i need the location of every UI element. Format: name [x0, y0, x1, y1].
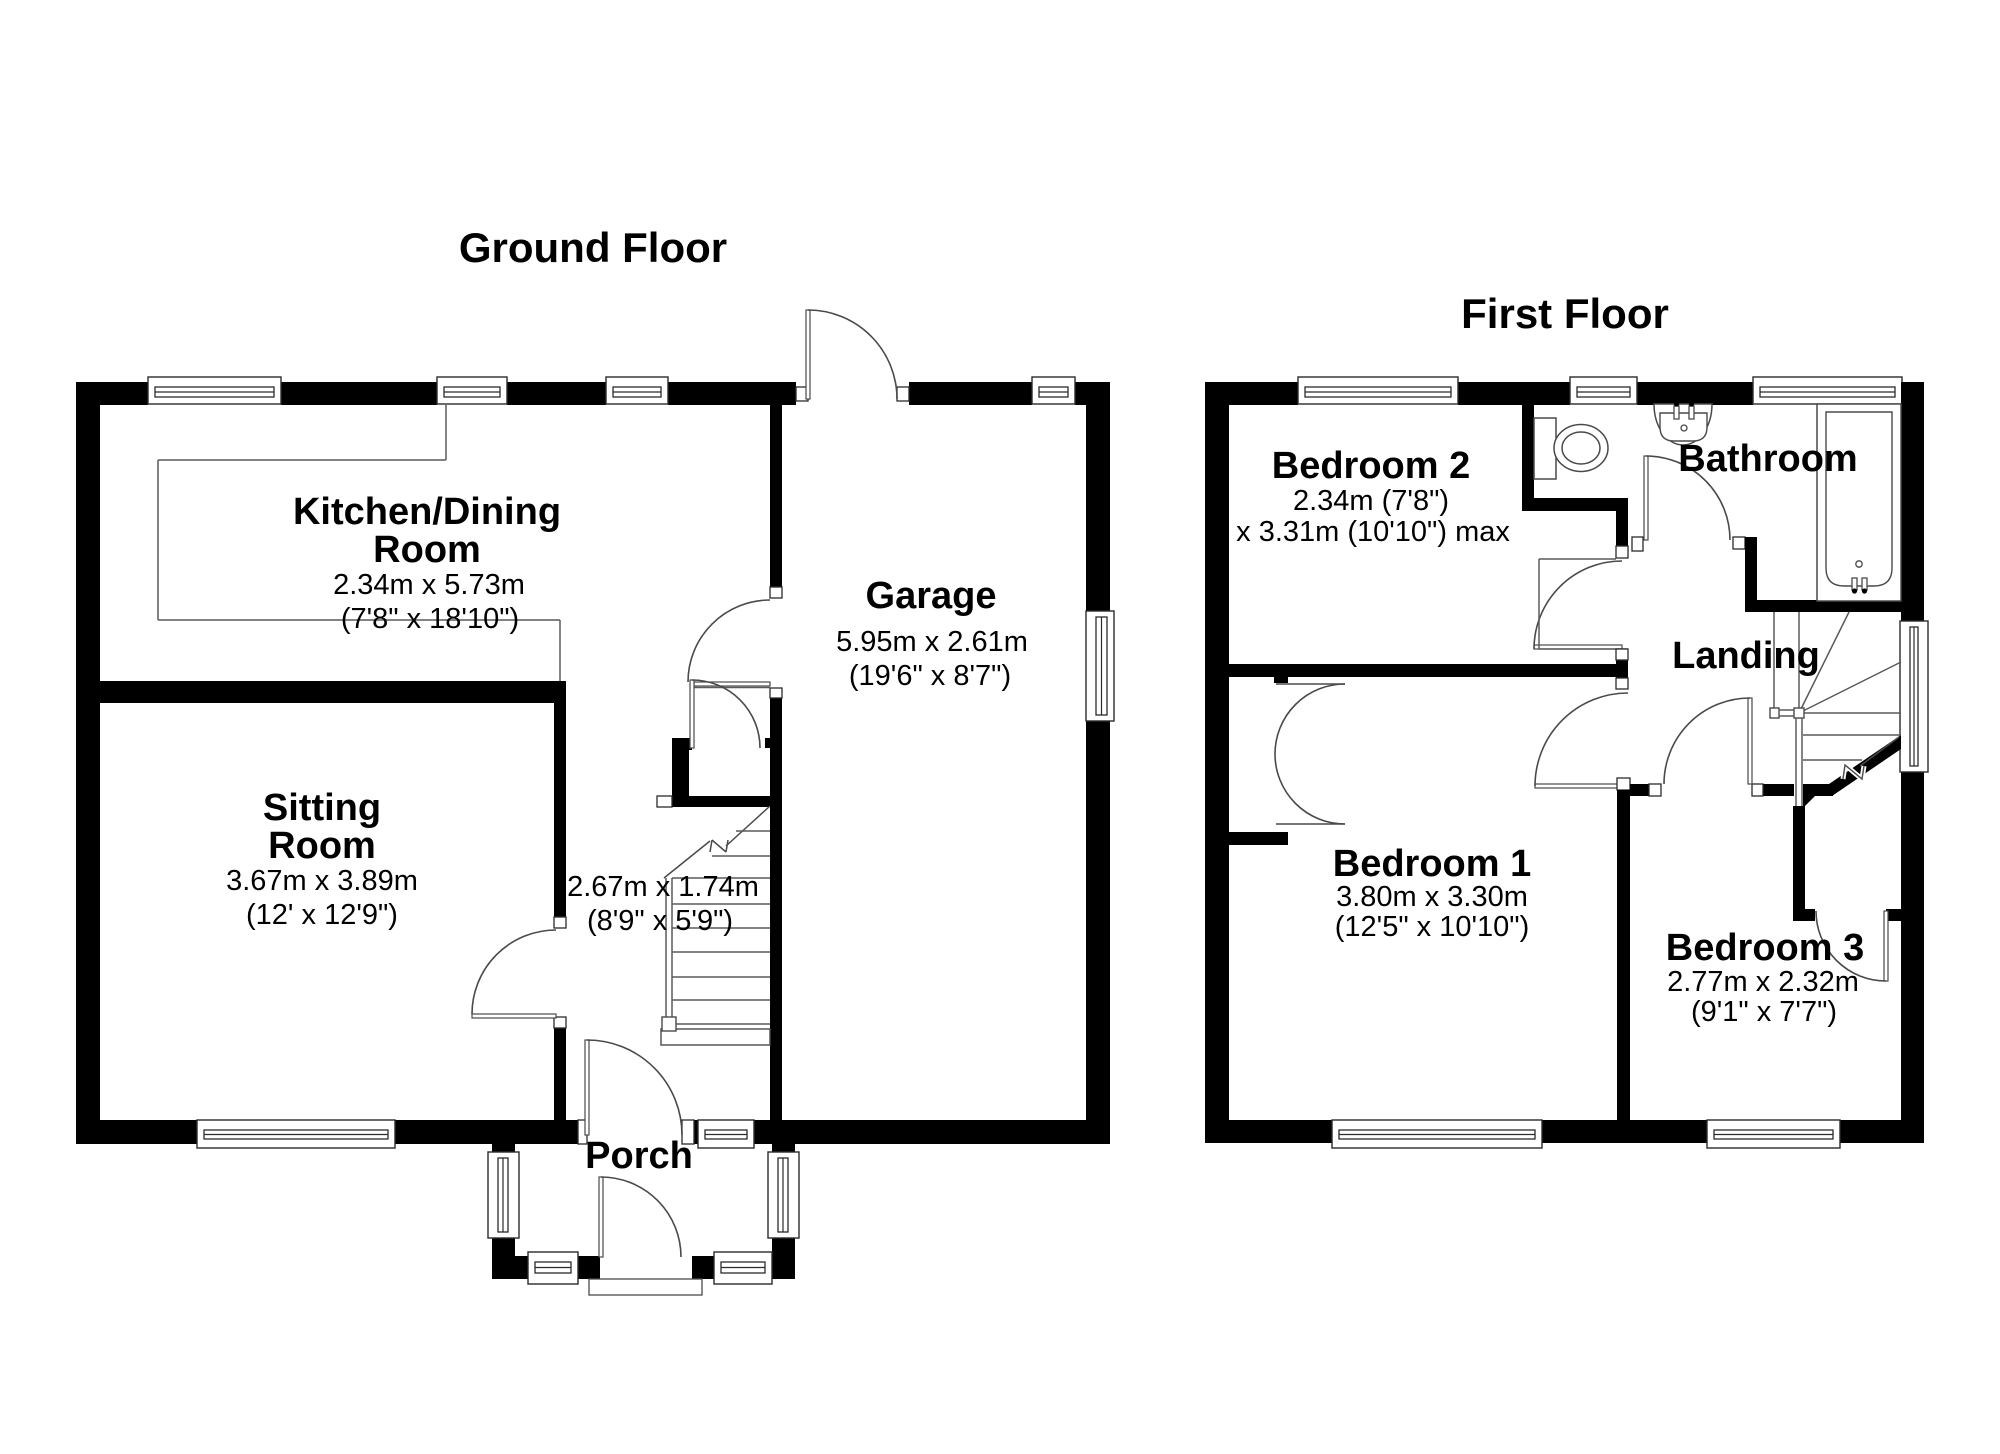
- svg-text:First Floor: First Floor: [1461, 290, 1669, 337]
- svg-text:Bedroom 3: Bedroom 3: [1666, 927, 1864, 969]
- svg-text:Room: Room: [373, 529, 481, 571]
- svg-text:2.34m (7'8"): 2.34m (7'8"): [1293, 485, 1449, 517]
- svg-text:Bathroom: Bathroom: [1678, 438, 1857, 480]
- svg-text:2.34m x 5.73m: 2.34m x 5.73m: [333, 569, 525, 601]
- svg-text:(7'8" x 18'10"): (7'8" x 18'10"): [341, 603, 519, 635]
- svg-text:2.77m x 2.32m: 2.77m x 2.32m: [1667, 966, 1859, 998]
- svg-text:(19'6" x 8'7"): (19'6" x 8'7"): [849, 660, 1011, 692]
- svg-text:Garage: Garage: [866, 575, 997, 617]
- svg-text:5.95m x 2.61m: 5.95m x 2.61m: [836, 626, 1028, 658]
- svg-text:(9'1" x 7'7"): (9'1" x 7'7"): [1691, 996, 1837, 1028]
- svg-text:Bedroom 1: Bedroom 1: [1333, 843, 1531, 885]
- svg-text:Room: Room: [268, 825, 376, 867]
- svg-text:x 3.31m (10'10") max: x 3.31m (10'10") max: [1236, 516, 1510, 548]
- svg-text:(12' x 12'9"): (12' x 12'9"): [246, 899, 398, 931]
- svg-text:Sitting: Sitting: [263, 787, 381, 829]
- svg-text:Porch: Porch: [585, 1135, 693, 1177]
- svg-text:2.67m x 1.74m: 2.67m x 1.74m: [567, 871, 759, 903]
- svg-text:3.67m x 3.89m: 3.67m x 3.89m: [226, 865, 418, 897]
- svg-text:Bedroom 2: Bedroom 2: [1272, 445, 1470, 487]
- svg-text:(8'9" x 5'9"): (8'9" x 5'9"): [587, 905, 733, 937]
- svg-text:3.80m x 3.30m: 3.80m x 3.30m: [1336, 881, 1528, 913]
- svg-text:Kitchen/Dining: Kitchen/Dining: [293, 491, 561, 533]
- svg-text:Ground Floor: Ground Floor: [459, 224, 727, 271]
- svg-text:Landing: Landing: [1672, 635, 1820, 677]
- svg-text:(12'5" x 10'10"): (12'5" x 10'10"): [1335, 911, 1530, 943]
